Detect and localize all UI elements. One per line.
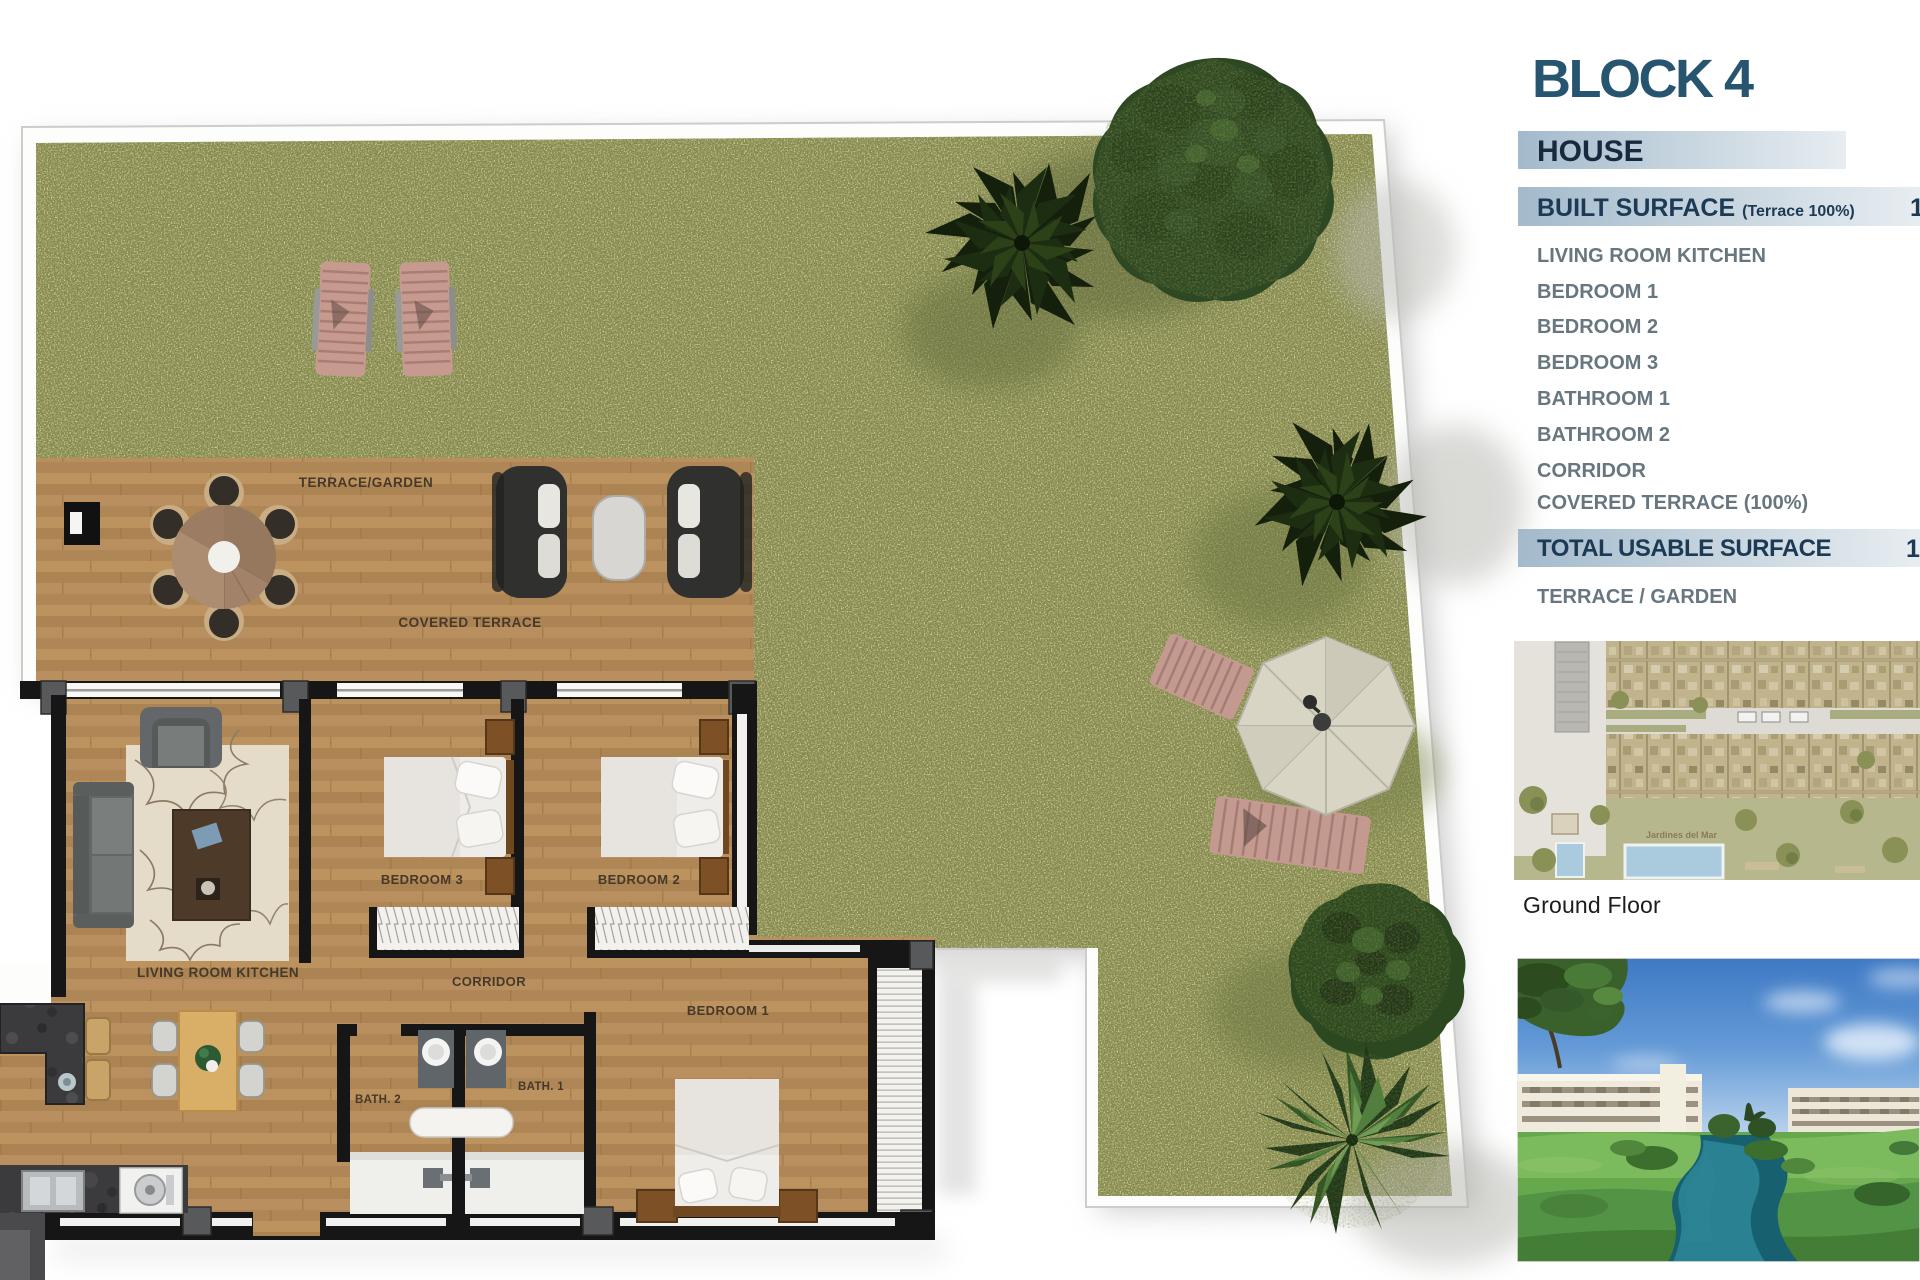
svg-text:CORRIDOR: CORRIDOR — [452, 974, 526, 989]
svg-text:BEDROOM 1: BEDROOM 1 — [687, 1003, 769, 1018]
svg-text:BEDROOM 3: BEDROOM 3 — [381, 872, 463, 887]
svg-text:Jardines del Mar: Jardines del Mar — [1646, 830, 1718, 840]
svg-text:BATH. 2: BATH. 2 — [355, 1094, 401, 1106]
svg-text:LIVING ROOM KITCHEN: LIVING ROOM KITCHEN — [137, 965, 299, 980]
svg-text:BEDROOM 2: BEDROOM 2 — [598, 872, 680, 887]
svg-text:BATH. 1: BATH. 1 — [518, 1081, 564, 1093]
svg-text:COVERED TERRACE: COVERED TERRACE — [398, 615, 541, 630]
svg-text:TERRACE/GARDEN: TERRACE/GARDEN — [299, 475, 434, 490]
